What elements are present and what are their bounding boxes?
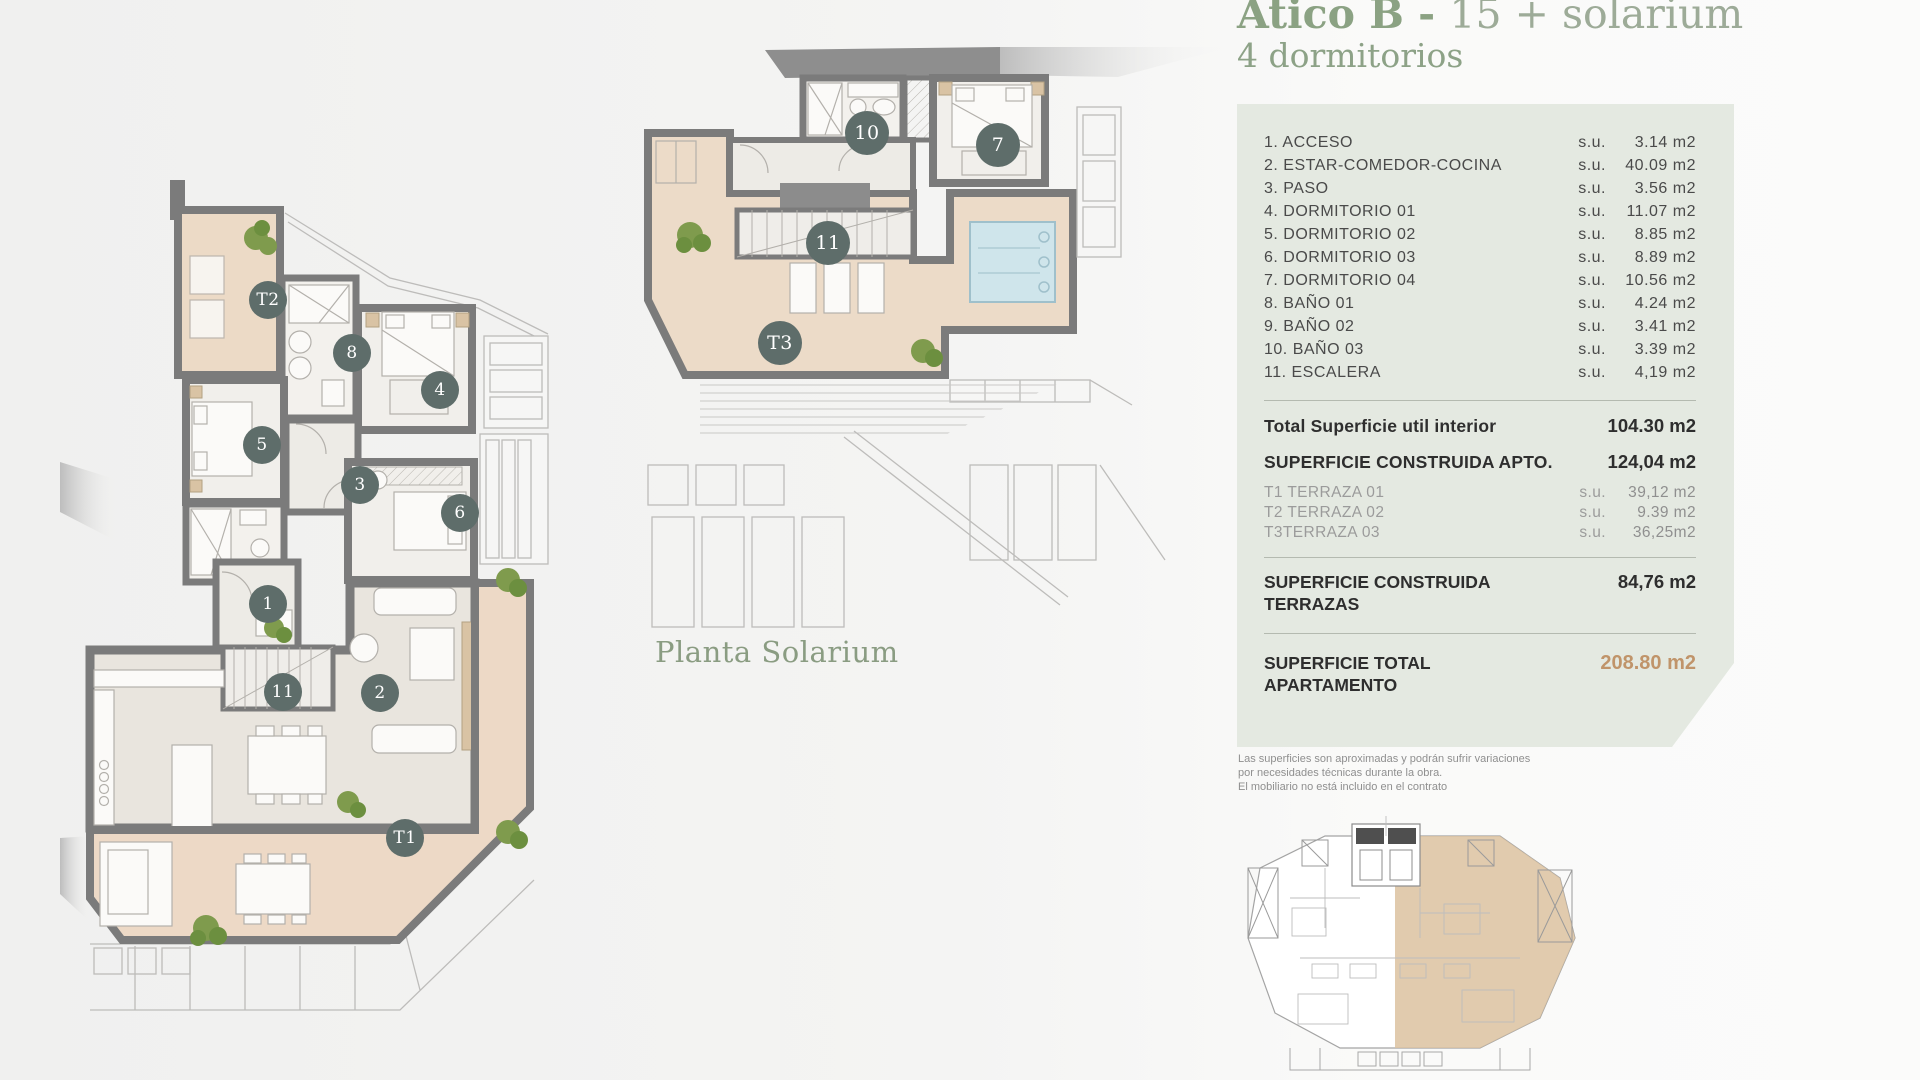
construida-apto-row: SUPERFICIE CONSTRUIDA APTO. 124,04 m2 [1264,451,1696,473]
total-apartamento-row: SUPERFICIE TOTAL APARTAMENTO 208.80 m2 [1264,652,1696,696]
panel-divider [1264,557,1696,558]
room-area-row: 4. DORMITORIO 01s.u.11.07 m2 [1264,203,1696,226]
terraza-row: T1 TERRAZA 01s.u.39,12 m2 [1264,484,1696,504]
area-summary-panel: 1. ACCESOs.u.3.14 m2 2. ESTAR-COMEDOR-CO… [1237,104,1734,747]
disclaimer-line: El mobiliario no está incluido en el con… [1238,780,1538,794]
room-area-row: 1. ACCESOs.u.3.14 m2 [1264,134,1696,157]
room-marker-11b: 11 [806,221,850,265]
total-util-row: Total Superficie util interior 104.30 m2 [1264,415,1696,437]
disclaimer-line: Las superficies son aproximadas y podrán… [1238,752,1538,766]
room-marker-t3: T3 [758,321,802,365]
brochure-page: T2 8 4 5 3 6 1 11 2 T1 [0,0,1920,1080]
disclaimer: Las superficies son aproximadas y podrán… [1238,752,1538,794]
room-marker-t2: T2 [249,281,287,319]
main-floor-plan-drawing [60,180,620,1020]
solarium-plan-drawing [640,45,1240,645]
room-marker-t1: T1 [386,819,424,857]
page-title-unit: Ático B - [1237,0,1449,38]
room-area-row: 9. BAÑO 02s.u.3.41 m2 [1264,318,1696,341]
room-area-row: 10. BAÑO 03s.u.3.39 m2 [1264,341,1696,364]
room-marker-1: 1 [249,585,287,623]
panel-divider [1264,633,1696,634]
construida-terrazas-row: SUPERFICIE CONSTRUIDA TERRAZAS 84,76 m2 [1264,571,1696,615]
room-marker-4: 4 [421,371,459,409]
main-floor-plan: T2 8 4 5 3 6 1 11 2 T1 [60,180,620,1020]
room-area-row: 3. PASOs.u.3.56 m2 [1264,180,1696,203]
room-marker-11: 11 [264,673,302,711]
key-plan-drawing [1230,808,1590,1078]
room-area-row: 6. DORMITORIO 03s.u.8.89 m2 [1264,249,1696,272]
room-marker-10: 10 [845,111,889,155]
solarium-floor-plan: 10 7 11 T3 [640,45,1240,645]
room-marker-2: 2 [361,674,399,712]
room-area-row: 5. DORMITORIO 02s.u.8.85 m2 [1264,226,1696,249]
room-area-row: 8. BAÑO 01s.u.4.24 m2 [1264,295,1696,318]
room-marker-5: 5 [243,426,281,464]
page-subtitle: 4 dormitorios [1237,36,1463,75]
room-area-row: 11. ESCALERAs.u.4,19 m2 [1264,364,1696,387]
total-apartamento-value: 208.80 m2 [1600,652,1696,696]
page-title: Ático B - 15 + solarium [1237,0,1757,38]
room-marker-3: 3 [341,466,379,504]
key-plan [1230,808,1590,1078]
solarium-plan-caption: Planta Solarium [655,635,899,669]
room-marker-7: 7 [976,123,1020,167]
terraza-row: T2 TERRAZA 02s.u.9.39 m2 [1264,504,1696,524]
page-title-suffix: 15 + solarium [1449,0,1743,38]
room-marker-8: 8 [333,334,371,372]
room-area-row: 7. DORMITORIO 04s.u.10.56 m2 [1264,272,1696,295]
panel-divider [1264,400,1696,401]
terraza-list: T1 TERRAZA 01s.u.39,12 m2 T2 TERRAZA 02s… [1264,484,1696,544]
room-area-list: 1. ACCESOs.u.3.14 m2 2. ESTAR-COMEDOR-CO… [1264,134,1696,387]
disclaimer-line: por necesidades técnicas durante la obra… [1238,766,1538,780]
room-area-row: 2. ESTAR-COMEDOR-COCINAs.u.40.09 m2 [1264,157,1696,180]
room-marker-6: 6 [441,494,479,532]
terraza-row: T3TERRAZA 03s.u.36,25m2 [1264,524,1696,544]
